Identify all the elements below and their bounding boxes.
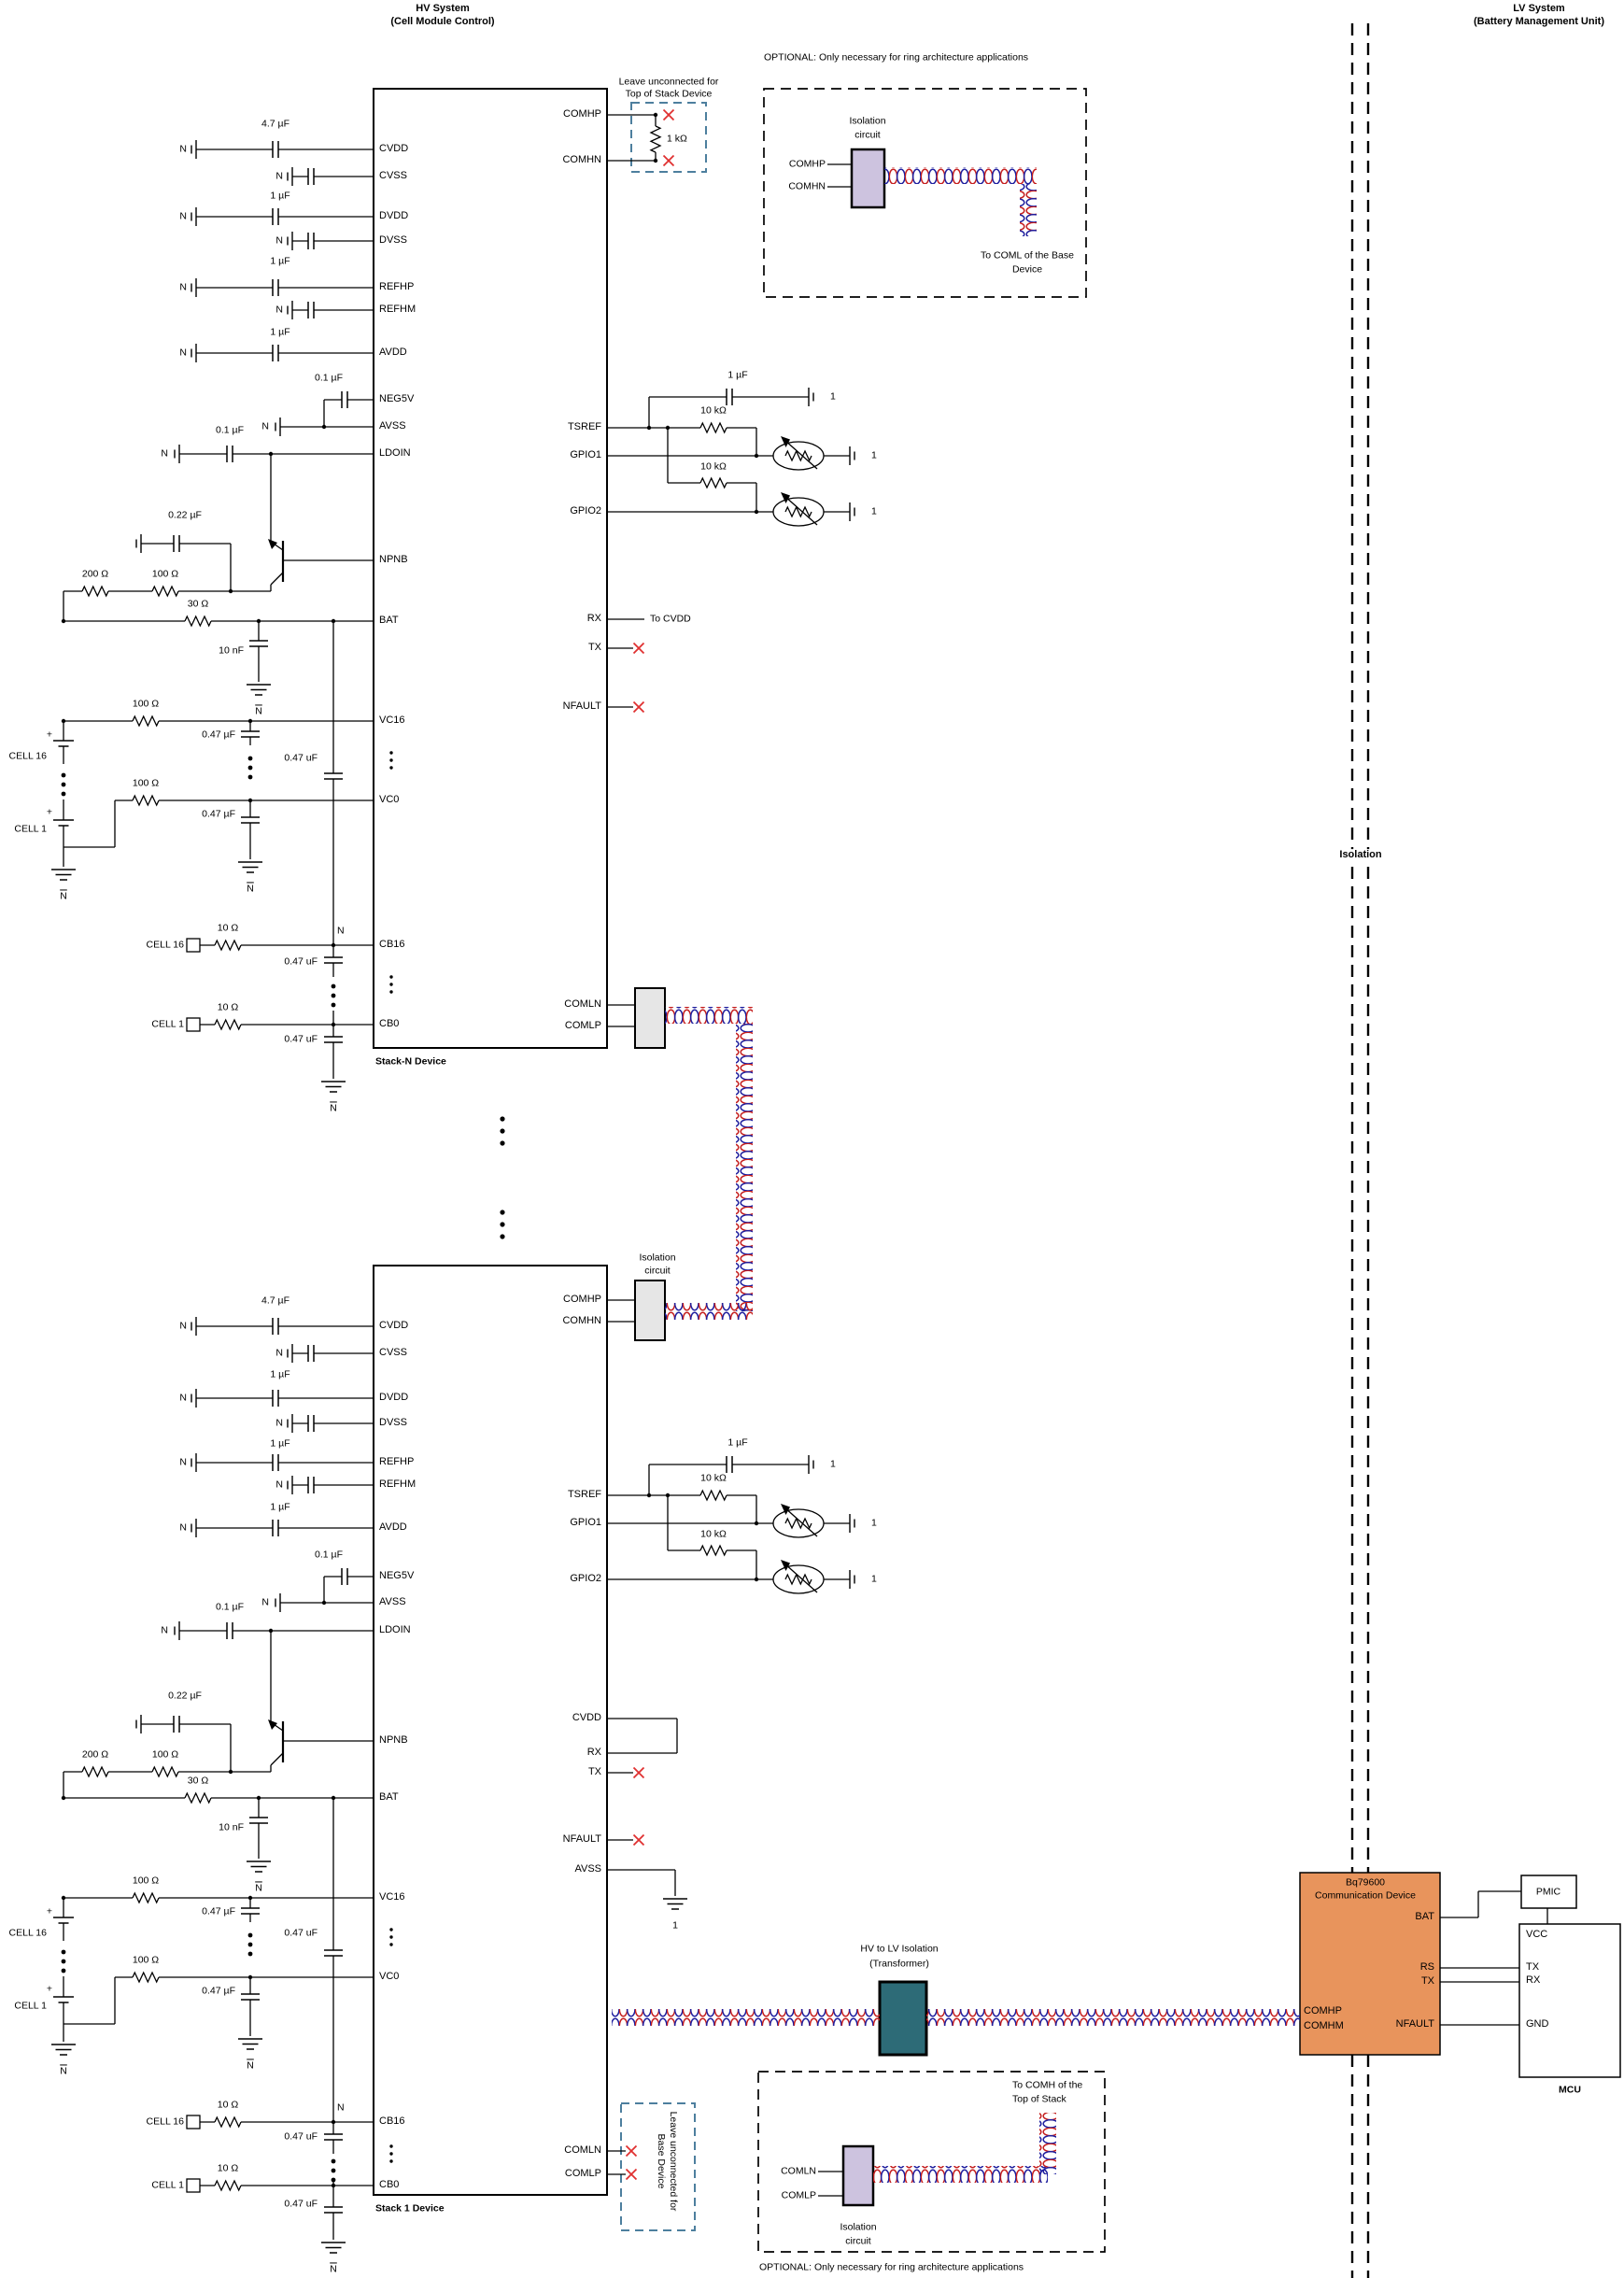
res-value: 100 Ω xyxy=(152,568,178,580)
net-n-label: N xyxy=(275,304,283,316)
stackn-pin-refhp: REFHP xyxy=(379,281,414,294)
cap-value: 1 µF xyxy=(270,1501,289,1513)
stack1-pin-refhm: REFHM xyxy=(379,1479,416,1492)
stack1-pin-tx: TX xyxy=(588,1766,601,1779)
cap-value: 10 nF xyxy=(219,644,244,657)
bq-pin-nfault: NFAULT xyxy=(1396,2018,1434,2031)
cell1-label: CELL 1 xyxy=(14,823,47,835)
plus-sign: + xyxy=(47,729,52,741)
stack1-pin-gpio1: GPIO1 xyxy=(570,1517,601,1530)
cell1-label: CELL 1 xyxy=(151,2179,184,2191)
bq79600-name-line2: Communication Device xyxy=(1315,1889,1416,1902)
optional-note-top: OPTIONAL: Only necessary for ring archit… xyxy=(764,51,1028,64)
stack-1-right-wires xyxy=(607,1300,850,2196)
cap-value: 1 µF xyxy=(270,1437,289,1450)
cap-value: 0.47 uF xyxy=(284,1033,318,1045)
cap-value: 4.7 µF xyxy=(261,118,289,130)
stackn-pin-comlp: COMLP xyxy=(565,1020,601,1033)
net-n-label: N xyxy=(179,347,187,359)
cell1-label: CELL 1 xyxy=(151,1018,184,1030)
stackn-pin-comhp: COMHP xyxy=(563,108,601,121)
optional-bottom-comln: COMLN xyxy=(781,2165,816,2177)
optional-bottom-comlp: COMLP xyxy=(782,2189,816,2201)
mcu-label: MCU xyxy=(1559,2084,1581,2096)
res-value: 100 Ω xyxy=(133,1954,159,1966)
net-n-label: N xyxy=(261,420,269,432)
stack1-pin-tsref: TSREF xyxy=(568,1489,601,1502)
stack1-pin-vc16: VC16 xyxy=(379,1891,405,1904)
mcu-pin-vcc: VCC xyxy=(1526,1929,1547,1942)
net-n-label: N xyxy=(161,447,168,460)
net-1-label: 1 xyxy=(871,449,877,461)
res-value: 100 Ω xyxy=(133,777,159,789)
stackn-pin-npnb: NPNB xyxy=(379,554,408,567)
stackn-pin-ldoin: LDOIN xyxy=(379,447,411,460)
cap-value: 0.47 uF xyxy=(284,2130,318,2143)
cap-value: 1 µF xyxy=(727,369,747,381)
stack1-pin-comln: COMLN xyxy=(564,2144,601,2158)
net-1-label: 1 xyxy=(871,505,877,517)
mcu-pin-gnd: GND xyxy=(1526,2018,1548,2031)
stack1-pin-nfault: NFAULT xyxy=(563,1833,601,1846)
schematic-page: HV System (Cell Module Control) LV Syste… xyxy=(0,0,1624,2278)
stackn-pin-gpio1: GPIO1 xyxy=(570,449,601,462)
pmic-label: PMIC xyxy=(1536,1886,1560,1898)
note-leave-top-line2: Top of Stack Device xyxy=(626,88,713,100)
stack-1-device-label: Stack 1 Device xyxy=(375,2202,445,2214)
net-n-label: N xyxy=(179,1521,187,1534)
net-n-label: N xyxy=(275,234,283,247)
optional-top-comhp: COMHP xyxy=(789,158,826,170)
bq-pin-bat: BAT xyxy=(1415,1911,1434,1924)
thermistors xyxy=(773,436,824,1593)
bq-pin-comhp: COMHP xyxy=(1304,2005,1342,2018)
cap-value: 1 µF xyxy=(270,255,289,267)
net-n-label: N xyxy=(179,143,187,155)
res-value: 10 Ω xyxy=(218,922,238,934)
stack1-pin-bat: BAT xyxy=(379,1791,399,1804)
cap-value: 0.1 µF xyxy=(216,1601,244,1613)
hv-lv-transformer-box xyxy=(880,1982,926,2055)
cap-value: 0.47 µF xyxy=(202,808,235,820)
cell16-label: CELL 16 xyxy=(9,1927,47,1939)
res-value: 10 Ω xyxy=(218,2162,238,2174)
gnd-net-n: N xyxy=(330,2263,337,2275)
cap-value: 1 µF xyxy=(270,1368,289,1380)
net-n-label: N xyxy=(179,210,187,222)
gnd-net-n: N xyxy=(330,1102,337,1114)
cap-value: 0.1 µF xyxy=(315,1549,343,1561)
res-value: 100 Ω xyxy=(152,1748,178,1761)
stack-n-device-box xyxy=(374,89,607,1048)
stack1-pin-avss-right: AVSS xyxy=(574,1863,601,1876)
stackn-pin-bat: BAT xyxy=(379,615,399,628)
stack1-pin-refhp: REFHP xyxy=(379,1456,414,1469)
optional-bottom-isolation-box xyxy=(843,2146,873,2205)
npn-transistor-stack-n xyxy=(268,454,374,591)
gnd-net-n: N xyxy=(247,883,254,895)
cap-value: 1 µF xyxy=(270,190,289,202)
cap-value: 0.47 µF xyxy=(202,1905,235,1917)
net-n-label: N xyxy=(179,1456,187,1468)
stackn-pin-tsref: TSREF xyxy=(568,421,601,434)
net-n-label: N xyxy=(275,1347,283,1359)
stack-1-comh-isolation-box xyxy=(635,1280,665,1340)
stack1-pin-cvss: CVSS xyxy=(379,1347,407,1360)
res-value: 10 kΩ xyxy=(700,404,727,417)
cap-value: 0.47 uF xyxy=(284,2198,318,2210)
stackn-pin-cb16: CB16 xyxy=(379,939,405,952)
cell16-label: CELL 16 xyxy=(9,750,47,762)
cap-value: 0.47 µF xyxy=(202,1985,235,1997)
stack1-pin-vc0: VC0 xyxy=(379,1971,399,1984)
plus-sign: + xyxy=(47,806,52,818)
stackn-pin-vc16: VC16 xyxy=(379,715,405,728)
lv-system-title: LV System xyxy=(1513,3,1564,16)
stack-n-device-label: Stack-N Device xyxy=(375,1055,446,1068)
hv-system-subtitle: (Cell Module Control) xyxy=(390,16,494,29)
net-1-label: 1 xyxy=(871,1517,877,1529)
stack1-pin-dvss: DVSS xyxy=(379,1417,407,1430)
cap-value: 4.7 µF xyxy=(261,1295,289,1307)
cell16-label: CELL 16 xyxy=(147,2115,184,2128)
plus-sign: + xyxy=(47,1905,52,1917)
stack1-pin-avss: AVSS xyxy=(379,1596,406,1609)
net-1-label: 1 xyxy=(871,1573,877,1585)
stack1-pin-cvdd-right: CVDD xyxy=(572,1712,601,1725)
res-value: 100 Ω xyxy=(133,698,159,710)
gnd-net-n: N xyxy=(60,890,67,902)
gnd-net-n: N xyxy=(255,705,262,717)
stackn-pin-vc0: VC0 xyxy=(379,794,399,807)
stack1-pin-neg5v: NEG5V xyxy=(379,1570,414,1583)
npn-transistor-stack-1 xyxy=(268,1631,374,1772)
stack-n-coml-isolation-box xyxy=(635,988,665,1048)
mcu-box xyxy=(1519,1924,1620,2077)
schematic-canvas xyxy=(0,0,1624,2278)
res-value: 100 Ω xyxy=(133,1875,159,1887)
res-value: 1 kΩ xyxy=(667,133,687,145)
note-to-cvdd: To CVDD xyxy=(650,613,691,625)
cap-value: 0.22 µF xyxy=(168,509,202,521)
cap-value: 0.22 µF xyxy=(168,1690,202,1702)
net-n-label: N xyxy=(275,1417,283,1429)
gnd-net-n: N xyxy=(247,2059,254,2072)
stackn-pin-avdd: AVDD xyxy=(379,347,407,360)
res-value: 10 kΩ xyxy=(700,460,727,473)
stack1-pin-cvdd: CVDD xyxy=(379,1320,408,1333)
net-n-label: N xyxy=(179,281,187,293)
stackn-pin-rx: RX xyxy=(587,613,601,626)
resistor-1k xyxy=(651,126,660,152)
plus-sign: + xyxy=(47,1983,52,1995)
stackn-pin-cvdd: CVDD xyxy=(379,143,408,156)
stack1-pin-npnb: NPNB xyxy=(379,1734,408,1747)
res-value: 10 kΩ xyxy=(700,1472,727,1484)
hv-lv-isolation-label-line1: HV to LV Isolation xyxy=(860,1943,938,1955)
note-leave-base: Leave unconnected forBase Device xyxy=(655,2112,679,2212)
net-1-label: 1 xyxy=(672,1919,678,1931)
res-value: 200 Ω xyxy=(82,1748,108,1761)
lv-system-subtitle: (Battery Management Unit) xyxy=(1474,16,1604,29)
optional-top-comhn: COMHN xyxy=(788,180,826,192)
stackn-pin-comhn: COMHN xyxy=(562,154,601,167)
isolation-circuit-label-line1: Isolation xyxy=(840,2221,876,2233)
stackn-pin-gpio2: GPIO2 xyxy=(570,505,601,518)
cell16-label: CELL 16 xyxy=(147,939,184,951)
net-1-label: 1 xyxy=(830,390,836,403)
stackn-pin-dvss: DVSS xyxy=(379,234,407,248)
stackn-pin-avss: AVSS xyxy=(379,420,406,433)
isolation-circuit-label-line2: circuit xyxy=(845,2235,870,2247)
cap-value: 0.47 µF xyxy=(202,729,235,741)
bq-pin-rs: RS xyxy=(1420,1961,1434,1974)
optional-top-isolation-box xyxy=(852,149,884,207)
hv-lv-isolation-label-line2: (Transformer) xyxy=(869,1958,929,1970)
gnd-net-n: N xyxy=(60,2065,67,2077)
gnd-net-n: N xyxy=(255,1882,262,1894)
note-to-coml-line1: To COML of the Base xyxy=(981,249,1074,262)
cap-value: 10 nF xyxy=(219,1821,244,1833)
mcu-pin-tx: TX xyxy=(1526,1961,1539,1974)
note-leave-top-line1: Leave unconnected for xyxy=(619,76,719,88)
stack-n-right-wires xyxy=(607,115,852,1026)
cap-value: 0.1 µF xyxy=(315,372,343,384)
note-to-comh-line2: Top of Stack xyxy=(1012,2093,1066,2105)
cap-value: 0.1 µF xyxy=(216,424,244,436)
isolation-circuit-label-line2: circuit xyxy=(854,129,880,141)
res-value: 200 Ω xyxy=(82,568,108,580)
net-n-label: N xyxy=(179,1320,187,1332)
stack1-pin-comhp: COMHP xyxy=(563,1294,601,1307)
net-n-label: N xyxy=(161,1624,168,1636)
res-value: 30 Ω xyxy=(188,1775,208,1787)
cap-value: 0.47 uF xyxy=(284,1927,318,1939)
stackn-pin-cb0: CB0 xyxy=(379,1018,399,1031)
stackn-pin-nfault: NFAULT xyxy=(563,700,601,714)
isolation-circuit-label-line2: circuit xyxy=(644,1265,670,1277)
stack1-pin-comhn: COMHN xyxy=(562,1315,601,1328)
stack1-pin-ldoin: LDOIN xyxy=(379,1624,411,1637)
net-n-label: N xyxy=(275,1479,283,1491)
bq-pin-comhm: COMHM xyxy=(1304,2020,1344,2033)
bq-pin-tx: TX xyxy=(1421,1975,1434,1988)
stackn-pin-comln: COMLN xyxy=(564,998,601,1012)
isolation-circuit-label-line1: Isolation xyxy=(849,115,885,127)
net-n-label: N xyxy=(337,2101,345,2114)
stackn-pin-refhm: REFHM xyxy=(379,304,416,317)
stack-n-left-wires xyxy=(64,149,374,1079)
no-connect-x-marks xyxy=(627,110,674,2180)
stackn-pin-dvdd: DVDD xyxy=(379,210,408,223)
res-value: 10 kΩ xyxy=(700,1528,727,1540)
stackn-pin-tx: TX xyxy=(588,642,601,655)
stackn-pin-neg5v: NEG5V xyxy=(379,393,414,406)
isolation-circuit-label-line1: Isolation xyxy=(639,1252,675,1264)
hv-system-title: HV System xyxy=(416,3,469,16)
stack1-pin-avdd: AVDD xyxy=(379,1521,407,1535)
stack1-pin-rx: RX xyxy=(587,1747,601,1760)
stack1-pin-cb16: CB16 xyxy=(379,2115,405,2129)
res-value: 10 Ω xyxy=(218,2099,238,2111)
note-to-coml-line2: Device xyxy=(1012,263,1042,276)
cap-value: 1 µF xyxy=(727,1436,747,1449)
cap-value: 0.47 uF xyxy=(284,752,318,764)
cap-value: 1 µF xyxy=(270,326,289,338)
stack1-pin-gpio2: GPIO2 xyxy=(570,1573,601,1586)
stack1-pin-dvdd: DVDD xyxy=(379,1392,408,1405)
stack1-pin-comlp: COMLP xyxy=(565,2168,601,2181)
cell-connector-pads xyxy=(187,939,200,2192)
stackn-pin-cvss: CVSS xyxy=(379,170,407,183)
res-value: 30 Ω xyxy=(188,598,208,610)
bq79600-name-line1: Bq79600 xyxy=(1346,1876,1385,1889)
net-n-label: N xyxy=(261,1596,269,1608)
cell1-label: CELL 1 xyxy=(14,2000,47,2012)
net-n-label: N xyxy=(337,925,345,937)
net-n-label: N xyxy=(179,1392,187,1404)
mcu-pin-rx: RX xyxy=(1526,1974,1540,1988)
isolation-label: Isolation xyxy=(1336,849,1384,862)
optional-note-bottom: OPTIONAL: Only necessary for ring archit… xyxy=(759,2261,1024,2273)
net-1-label: 1 xyxy=(830,1458,836,1470)
note-to-comh-line1: To COMH of the xyxy=(1012,2079,1082,2091)
res-value: 10 Ω xyxy=(218,1001,238,1013)
cap-value: 0.47 uF xyxy=(284,955,318,968)
stack1-pin-cb0: CB0 xyxy=(379,2179,399,2192)
stack-1-device-box xyxy=(374,1266,607,2195)
net-n-label: N xyxy=(275,170,283,182)
